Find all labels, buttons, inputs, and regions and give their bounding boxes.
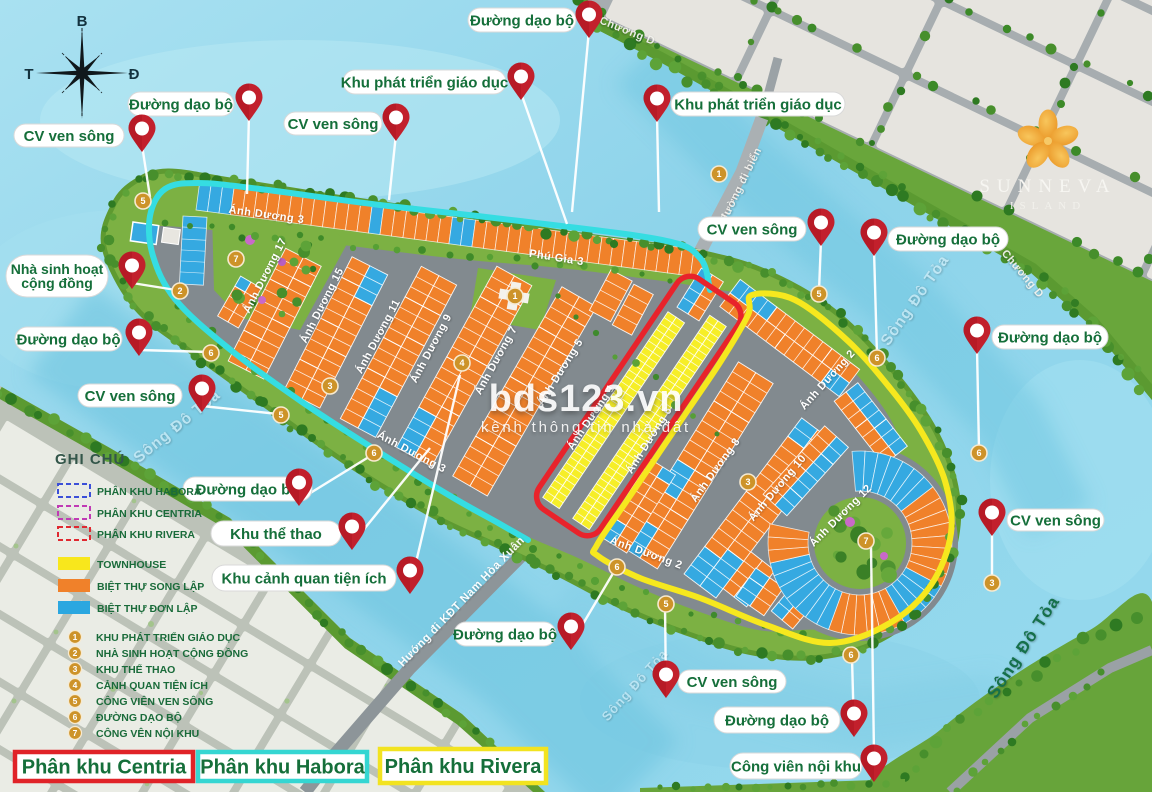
svg-text:CÔNG VIÊN VEN SÔNG: CÔNG VIÊN VEN SÔNG bbox=[96, 695, 213, 708]
svg-text:Đường dạo bộ: Đường dạo bộ bbox=[453, 626, 557, 643]
svg-text:Đường dạo bộ: Đường dạo bộ bbox=[129, 96, 233, 113]
svg-text:6: 6 bbox=[848, 650, 853, 660]
svg-text:ĐƯỜNG DẠO BỘ: ĐƯỜNG DẠO BỘ bbox=[96, 711, 182, 724]
svg-text:CÔNG VÊN NỘI KHU: CÔNG VÊN NỘI KHU bbox=[96, 727, 199, 740]
svg-text:6: 6 bbox=[614, 562, 619, 572]
svg-text:GHI CHÚ: GHI CHÚ bbox=[55, 450, 125, 468]
svg-text:NHÀ SINH HOẠT CỘNG ĐỒNG: NHÀ SINH HOẠT CỘNG ĐỒNG bbox=[96, 647, 248, 660]
svg-text:7: 7 bbox=[73, 728, 78, 738]
svg-text:CV ven sông: CV ven sông bbox=[85, 388, 176, 405]
svg-text:2: 2 bbox=[177, 286, 182, 296]
svg-text:bds123.vn: bds123.vn bbox=[489, 378, 684, 420]
svg-text:TOWNHOUSE: TOWNHOUSE bbox=[97, 559, 166, 571]
svg-text:Khu thể thao: Khu thể thao bbox=[230, 526, 322, 543]
svg-text:Khu cảnh quan tiện ích: Khu cảnh quan tiện ích bbox=[221, 570, 386, 587]
svg-text:KHU THỂ THAO: KHU THỂ THAO bbox=[96, 663, 175, 676]
svg-text:5: 5 bbox=[663, 599, 668, 609]
svg-text:PHÂN KHU CENTRIA: PHÂN KHU CENTRIA bbox=[97, 507, 202, 520]
svg-text:Đ: Đ bbox=[129, 66, 140, 83]
svg-text:4: 4 bbox=[459, 358, 464, 368]
svg-text:BIỆT THỰ ĐƠN LẬP: BIỆT THỰ ĐƠN LẬP bbox=[97, 602, 198, 615]
svg-text:1: 1 bbox=[512, 291, 517, 301]
svg-text:3: 3 bbox=[73, 664, 78, 674]
svg-text:3: 3 bbox=[327, 381, 332, 391]
svg-text:KHU PHÁT TRIỂN GIÁO DỤC: KHU PHÁT TRIỂN GIÁO DỤC bbox=[96, 631, 241, 644]
svg-text:CV ven sông: CV ven sông bbox=[687, 674, 778, 691]
svg-text:Phân khu Rivera: Phân khu Rivera bbox=[385, 756, 543, 778]
svg-text:Phân khu Habora: Phân khu Habora bbox=[200, 757, 365, 779]
svg-text:1: 1 bbox=[716, 169, 721, 179]
svg-text:Đường dạo bộ: Đường dạo bộ bbox=[896, 231, 1000, 248]
svg-text:5: 5 bbox=[278, 410, 283, 420]
svg-text:2: 2 bbox=[73, 648, 78, 658]
svg-text:T: T bbox=[24, 66, 33, 83]
svg-text:CV ven sông: CV ven sông bbox=[1010, 512, 1101, 529]
svg-text:Đường dạo bộ: Đường dạo bộ bbox=[16, 331, 120, 348]
svg-text:5: 5 bbox=[140, 196, 145, 206]
svg-text:Đường dạo bộ: Đường dạo bộ bbox=[470, 12, 574, 29]
svg-text:PHÂN KHU HABORA: PHÂN KHU HABORA bbox=[97, 485, 202, 498]
svg-text:ISLAND: ISLAND bbox=[1010, 200, 1086, 212]
svg-text:cộng đồng: cộng đồng bbox=[21, 275, 93, 291]
svg-text:CẢNH QUAN TIỆN ÍCH: CẢNH QUAN TIỆN ÍCH bbox=[96, 679, 208, 692]
svg-text:Khu phát triển giáo dục: Khu phát triển giáo dục bbox=[674, 96, 842, 113]
svg-text:CV ven sông: CV ven sông bbox=[24, 128, 115, 145]
svg-text:Khu phát triển giáo dục: Khu phát triển giáo dục bbox=[341, 74, 509, 91]
svg-text:3: 3 bbox=[989, 578, 994, 588]
svg-text:7: 7 bbox=[233, 254, 238, 264]
svg-text:Đường dạo bộ: Đường dạo bộ bbox=[998, 329, 1102, 346]
svg-text:7: 7 bbox=[863, 536, 868, 546]
svg-text:Công viên nội khu: Công viên nội khu bbox=[731, 758, 861, 775]
svg-text:6: 6 bbox=[874, 353, 879, 363]
svg-text:4: 4 bbox=[73, 680, 78, 690]
svg-text:1: 1 bbox=[73, 632, 78, 642]
svg-text:Đường dạo bộ: Đường dạo bộ bbox=[725, 712, 829, 729]
svg-text:6: 6 bbox=[208, 348, 213, 358]
svg-text:CV ven sông: CV ven sông bbox=[707, 221, 798, 238]
svg-text:Phân khu Centria: Phân khu Centria bbox=[22, 757, 187, 779]
svg-text:BIỆT THỰ SONG LẬP: BIỆT THỰ SONG LẬP bbox=[97, 580, 204, 593]
svg-text:3: 3 bbox=[745, 477, 750, 487]
svg-text:6: 6 bbox=[371, 448, 376, 458]
svg-text:5: 5 bbox=[73, 696, 78, 706]
svg-text:CV ven sông: CV ven sông bbox=[288, 116, 379, 133]
svg-text:6: 6 bbox=[976, 448, 981, 458]
svg-text:6: 6 bbox=[73, 712, 78, 722]
svg-text:SUNNEVA: SUNNEVA bbox=[979, 176, 1116, 197]
svg-text:B: B bbox=[77, 13, 88, 30]
svg-text:kênh thông tin nhà đất: kênh thông tin nhà đất bbox=[481, 419, 691, 436]
svg-text:PHÂN KHU RIVERA: PHÂN KHU RIVERA bbox=[97, 528, 195, 541]
svg-text:5: 5 bbox=[816, 289, 821, 299]
svg-text:Đường dạo bộ: Đường dạo bộ bbox=[195, 481, 299, 498]
